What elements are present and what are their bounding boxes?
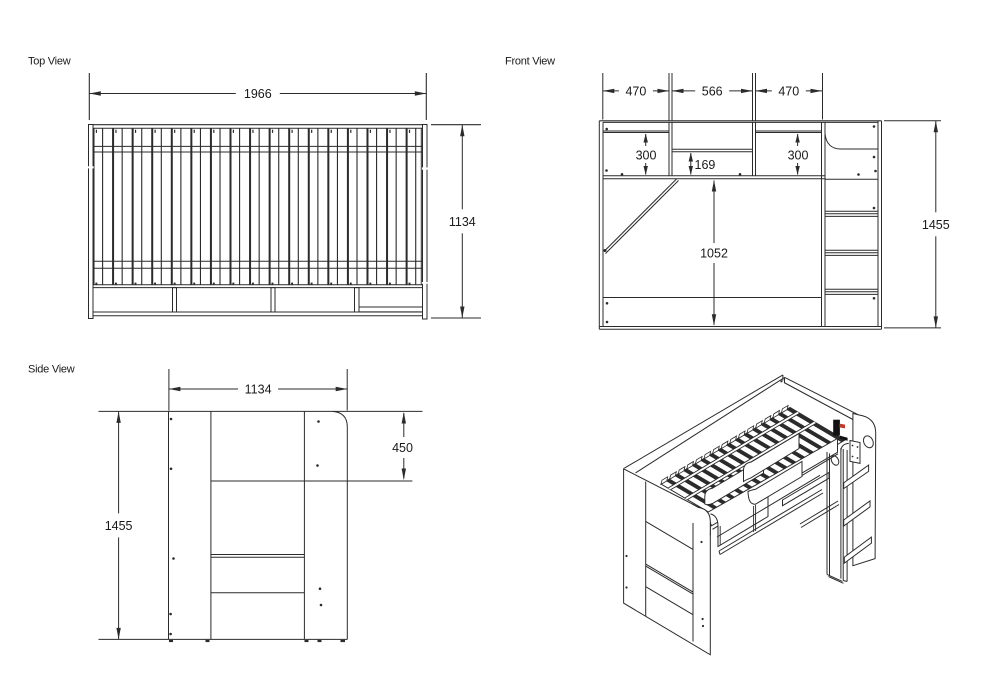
svg-text:Front View: Front View — [505, 56, 555, 68]
svg-text:470: 470 — [778, 84, 799, 98]
svg-text:Side View: Side View — [28, 364, 75, 376]
svg-text:1455: 1455 — [922, 218, 950, 232]
svg-text:566: 566 — [702, 84, 723, 98]
svg-text:1966: 1966 — [244, 87, 272, 101]
svg-text:1052: 1052 — [700, 247, 728, 261]
svg-text:1455: 1455 — [105, 519, 133, 533]
svg-text:169: 169 — [695, 158, 716, 172]
svg-text:1134: 1134 — [245, 383, 272, 397]
svg-text:300: 300 — [788, 149, 809, 163]
svg-text:300: 300 — [636, 149, 657, 163]
svg-text:1134: 1134 — [449, 215, 476, 229]
svg-text:470: 470 — [625, 84, 646, 98]
svg-text:Top View: Top View — [28, 56, 71, 68]
svg-text:450: 450 — [392, 441, 413, 455]
